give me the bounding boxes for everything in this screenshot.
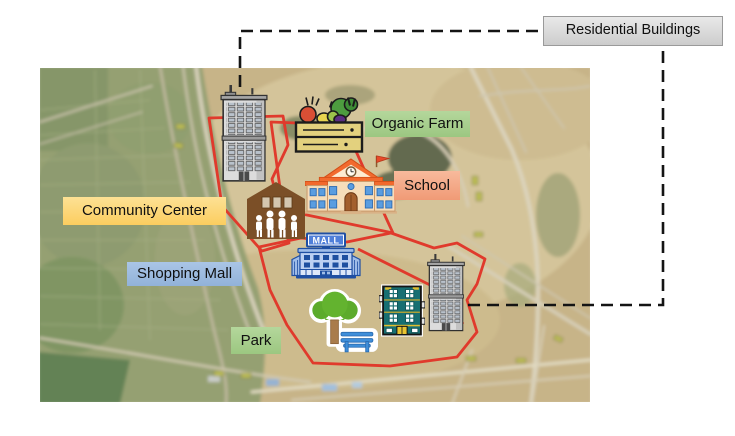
label-park-text: Park [241,333,272,349]
label-community-center-text: Community Center [82,203,207,219]
apartment-block-icon [379,283,425,339]
label-community-center: Community Center [63,197,226,225]
shopping-mall-icon: MALL [291,231,361,289]
school-building-icon [305,154,397,215]
label-residential-buildings-text: Residential Buildings [566,23,701,38]
label-residential-buildings: Residential Buildings [543,16,723,46]
residential-tower-icon [426,247,466,340]
label-school: School [394,171,460,200]
label-organic-farm: Organic Farm [365,111,470,137]
mall-sign-text: MALL [313,235,340,245]
label-shopping-mall-text: Shopping Mall [137,266,232,282]
label-park: Park [231,327,281,354]
label-organic-farm-text: Organic Farm [372,116,464,132]
organic-farm-crate-icon [294,93,366,156]
label-shopping-mall: Shopping Mall [127,262,242,286]
residential-tower-icon [219,85,269,184]
site-map-figure: MALL [0,0,735,436]
label-school-text: School [404,178,450,194]
connector-left-tower [240,31,538,87]
connector-right-tower [468,48,663,305]
park-tree-bench-icon [306,288,378,356]
